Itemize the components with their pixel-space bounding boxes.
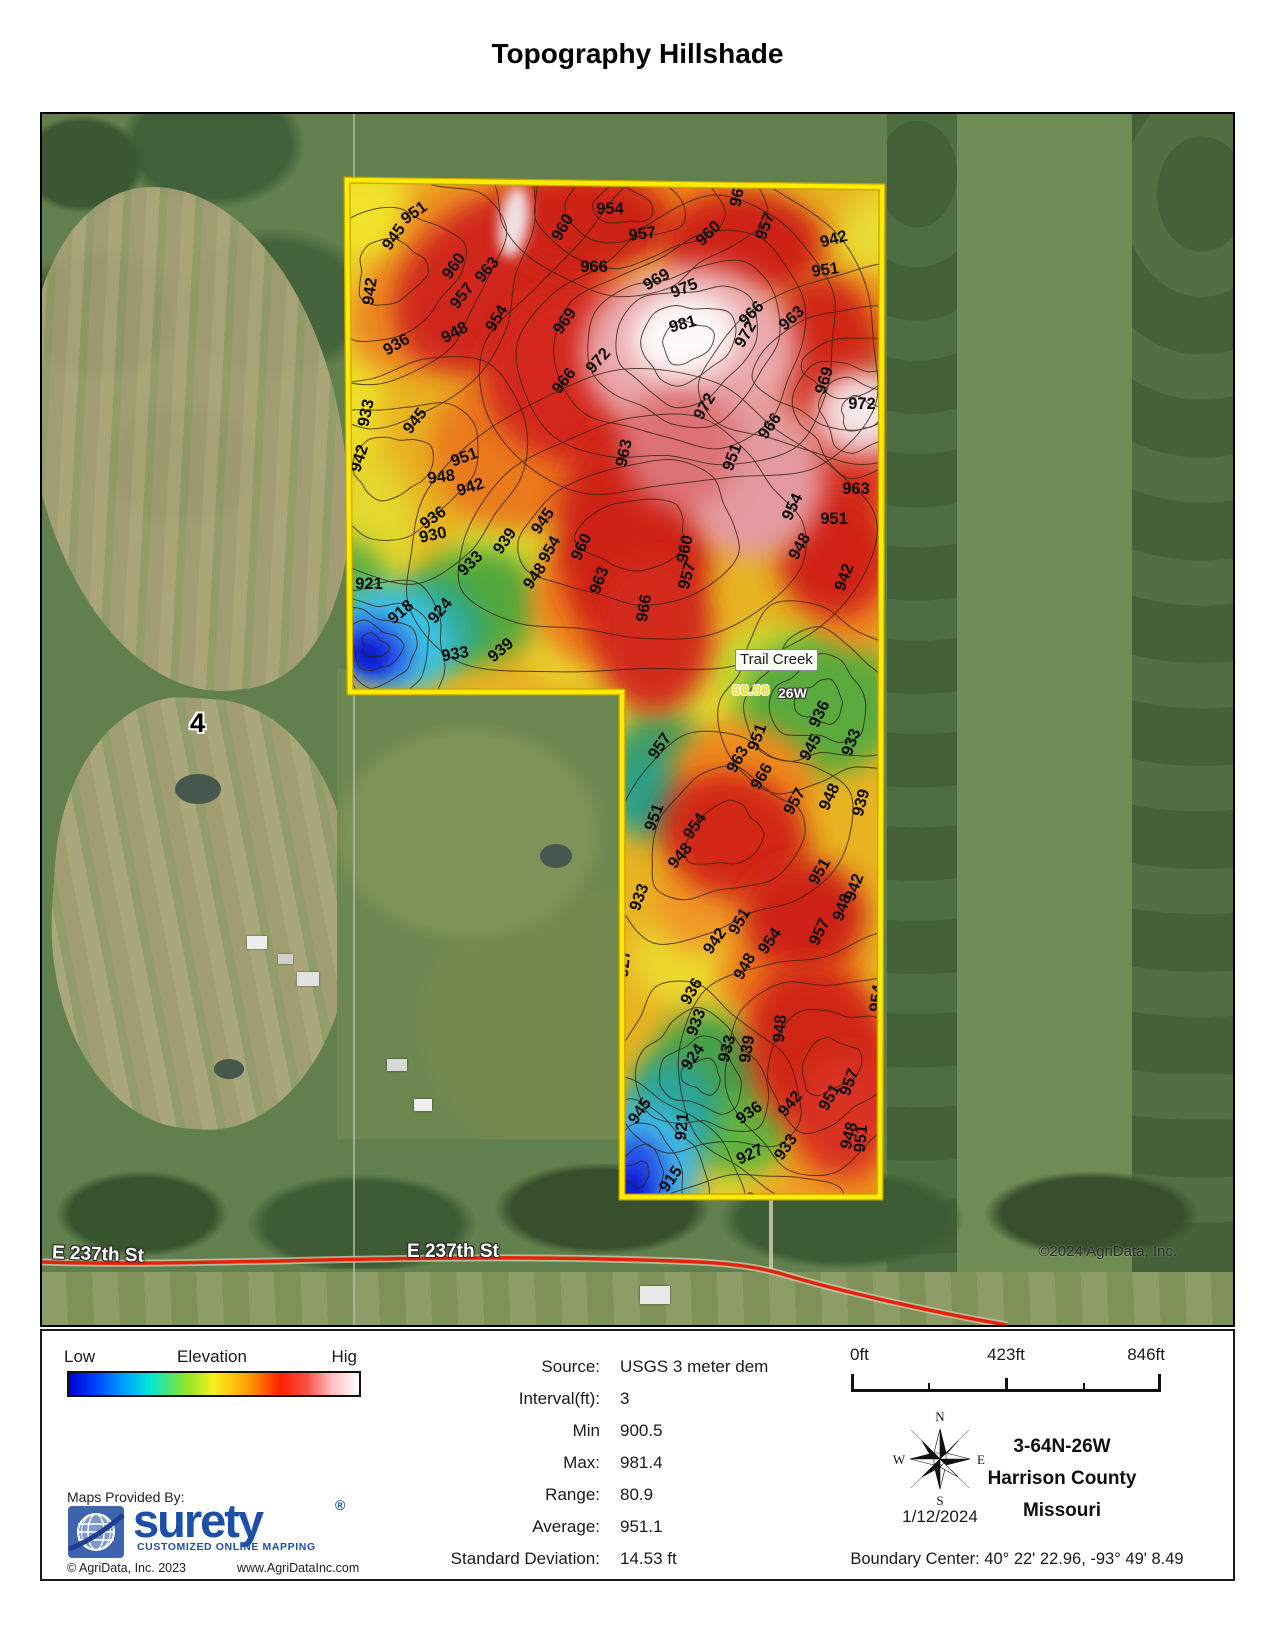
scale-tick — [1083, 1383, 1085, 1392]
stat-label: Range: — [282, 1479, 600, 1511]
stat-value: 3 — [620, 1383, 629, 1415]
stat-label: Average: — [282, 1511, 600, 1543]
surety-brand: surety — [133, 1493, 262, 1548]
contour-elevation-label: 963 — [842, 480, 870, 498]
agridata-copyright: © AgriData, Inc. 2023 — [67, 1561, 186, 1575]
scale-end-label: 846ft — [1127, 1345, 1165, 1365]
stat-value: USGS 3 meter dem — [620, 1351, 768, 1383]
road-line — [42, 1258, 1007, 1325]
stat-row: Range: 80.9 — [282, 1479, 832, 1511]
elevation-overlay: 9519459549579609639579609429519609639669… — [42, 114, 1233, 1325]
contour-elevation-label: 951 — [820, 510, 848, 528]
road-number-label: 60.00 — [732, 682, 770, 699]
scale-mid-label: 423ft — [847, 1345, 1165, 1365]
page-title: Topography Hillshade — [0, 38, 1275, 70]
contour-elevation-label: 951 — [810, 259, 840, 281]
stat-value: 900.5 — [620, 1415, 663, 1447]
road-suffix-label: 26W — [778, 685, 807, 701]
location-block: 3-64N-26W Harrison County Missouri — [932, 1431, 1192, 1527]
stat-value: 951.1 — [620, 1511, 663, 1543]
stat-label: Source: — [282, 1351, 600, 1383]
contour-elevation-label: 942 — [359, 276, 381, 306]
stat-value: 14.53 ft — [620, 1543, 677, 1575]
contour-elevation-label: 948 — [426, 466, 456, 488]
township-range: 3-64N-26W — [932, 1431, 1192, 1463]
state: Missouri — [932, 1495, 1192, 1527]
stat-label: Min — [282, 1415, 600, 1447]
trail-creek-label: Trail Creek — [735, 649, 818, 671]
map-copyright: ©2024 AgriData, Inc. — [997, 1243, 1177, 1260]
scale-tick — [1005, 1378, 1008, 1392]
stat-label: Standard Deviation: — [282, 1543, 600, 1575]
surety-globe-icon — [67, 1505, 127, 1559]
stat-row: Source: USGS 3 meter dem — [282, 1351, 832, 1383]
boundary-center: Boundary Center: 40° 22' 22.96, -93° 49'… — [802, 1550, 1232, 1569]
contour-elevation-label: 951 — [851, 1124, 871, 1153]
stat-label: Interval(ft): — [282, 1383, 600, 1415]
scale-tick — [851, 1374, 854, 1392]
map-canvas: 9519459549579609639579609429519609639669… — [40, 112, 1235, 1327]
stat-row: Standard Deviation: 14.53 ft — [282, 1543, 832, 1575]
contour-elevation-label: 966 — [580, 258, 608, 276]
stat-row: Max: 981.4 — [282, 1447, 832, 1479]
county: Harrison County — [932, 1463, 1192, 1495]
stat-label: Max: — [282, 1447, 600, 1479]
section-number-label: 4 — [190, 708, 205, 739]
street-label: E 237th St — [52, 1242, 145, 1267]
stat-row: Min 900.5 — [282, 1415, 832, 1447]
contour-elevation-label: 921 — [672, 1112, 692, 1141]
contour-elevation-label: 972 — [848, 395, 876, 413]
stat-value: 981.4 — [620, 1447, 663, 1479]
street-label: E 237th St — [407, 1241, 499, 1263]
stat-value: 80.9 — [620, 1479, 653, 1511]
compass-n-label: N — [935, 1409, 945, 1424]
contour-elevation-label: 954 — [596, 200, 624, 218]
contour-elevation-label: 957 — [627, 223, 657, 245]
scale-tick — [928, 1383, 930, 1392]
scale-bar: 0ft 423ft 846ft — [847, 1345, 1165, 1395]
stat-row: Interval(ft): 3 — [282, 1383, 832, 1415]
compass-w-label: W — [893, 1452, 906, 1467]
road-base — [42, 1258, 1007, 1325]
scale-tick — [1158, 1374, 1161, 1392]
contour-elevation-label: 921 — [355, 575, 383, 593]
footer-panel: Low Elevation Hig Maps Provided By: sure… — [40, 1329, 1235, 1581]
stat-row: Average: 951.1 — [282, 1511, 832, 1543]
contour-elevation-label: 948 — [770, 1014, 790, 1043]
